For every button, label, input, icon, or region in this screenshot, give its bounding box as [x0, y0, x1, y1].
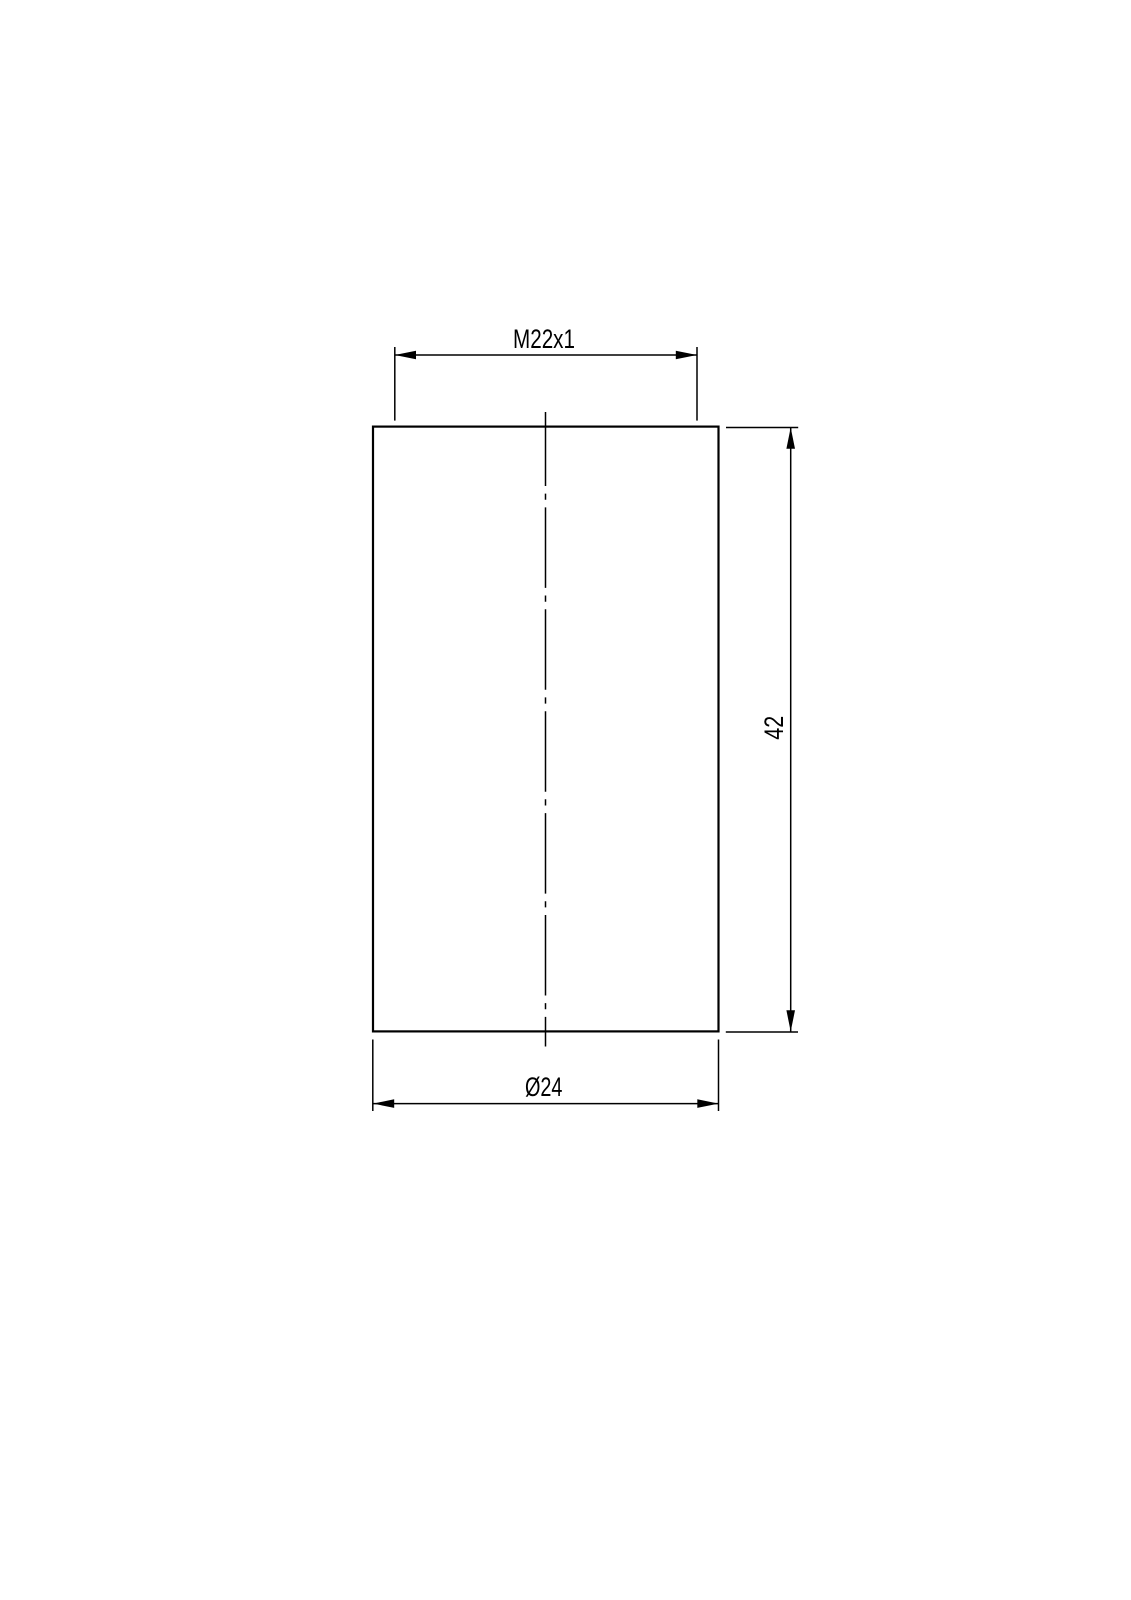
svg-text:Ø24: Ø24: [525, 1072, 563, 1102]
svg-text:M22x1: M22x1: [513, 324, 575, 354]
svg-text:42: 42: [759, 716, 789, 740]
